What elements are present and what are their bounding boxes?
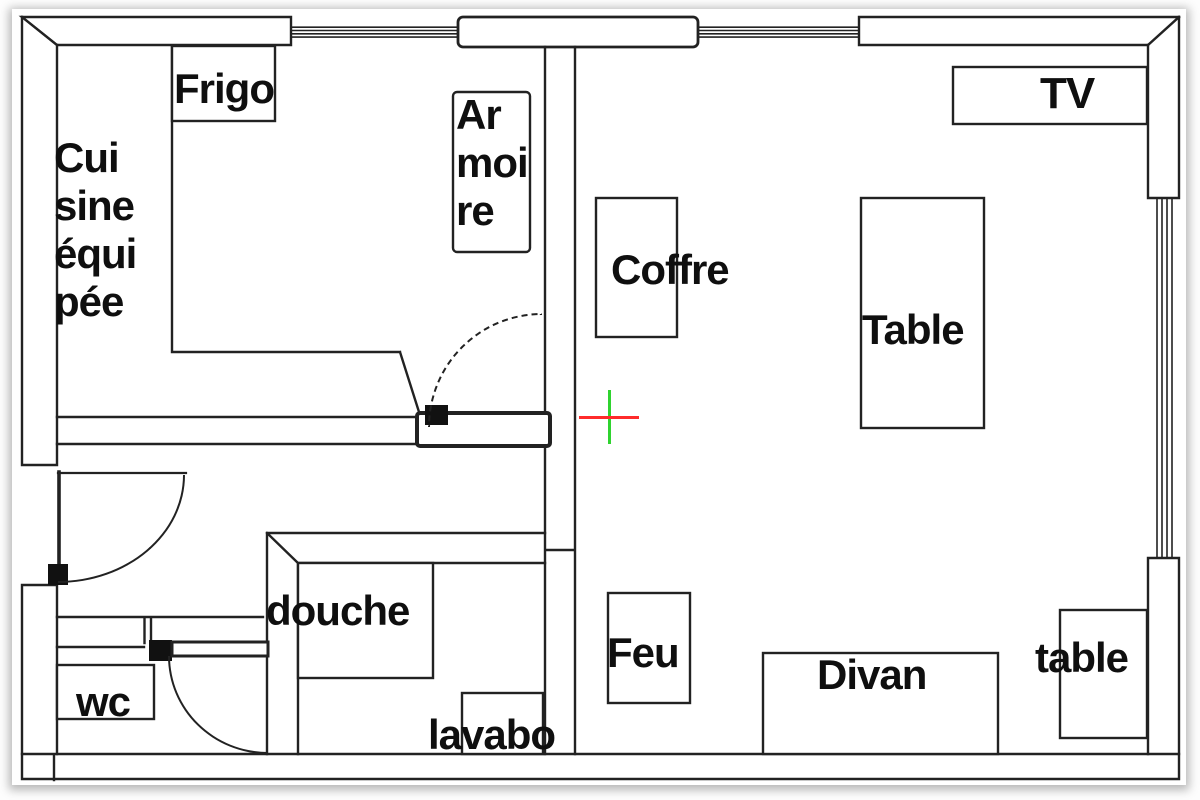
table-label: Table xyxy=(862,306,964,354)
window-top-1 xyxy=(291,27,460,37)
shower-label: douche xyxy=(266,587,409,635)
kitchen-label-line3: équi xyxy=(54,230,136,278)
wall-pier-top xyxy=(458,17,698,47)
tv-label: TV xyxy=(1040,70,1094,118)
wall-top-right xyxy=(859,17,1179,45)
floor-plan-canvas: Cui sine équi pée Frigo Ar moi re Coffre… xyxy=(0,0,1200,800)
window-right xyxy=(1157,198,1172,558)
wardrobe-label-line1: Ar xyxy=(456,91,528,139)
window-top-2 xyxy=(698,27,859,37)
wall-right-upper xyxy=(1148,17,1179,198)
wardrobe-label: Ar moi re xyxy=(456,91,528,235)
small-table-label: table xyxy=(1035,634,1128,682)
wall-interior-vertical xyxy=(545,47,575,754)
kitchen-label-line2: sine xyxy=(54,182,136,230)
kitchen-label-line1: Cui xyxy=(54,134,136,182)
wall-top-left xyxy=(22,17,291,45)
wc-door-leaf xyxy=(172,642,268,656)
wall-miter-top-left xyxy=(22,17,57,45)
sofa-label: Divan xyxy=(817,651,926,699)
wc-label: wc xyxy=(76,678,130,726)
sink-label: lavabo xyxy=(428,711,555,759)
crosshair-cursor-horizontal xyxy=(579,416,639,419)
kitchen-label: Cui sine équi pée xyxy=(54,134,136,326)
wall-kitchen-bath xyxy=(57,417,420,444)
wardrobe-label-line2: moi xyxy=(456,139,528,187)
wardrobe-label-line3: re xyxy=(456,187,528,235)
wall-left xyxy=(22,17,57,754)
fridge-label: Frigo xyxy=(168,65,280,113)
wall-bottom xyxy=(22,754,1179,780)
kitchen-label-line4: pée xyxy=(54,278,136,326)
wall-right-lower xyxy=(1148,558,1179,754)
chest-label: Coffre xyxy=(611,246,729,294)
stove-label: Feu xyxy=(607,629,679,677)
